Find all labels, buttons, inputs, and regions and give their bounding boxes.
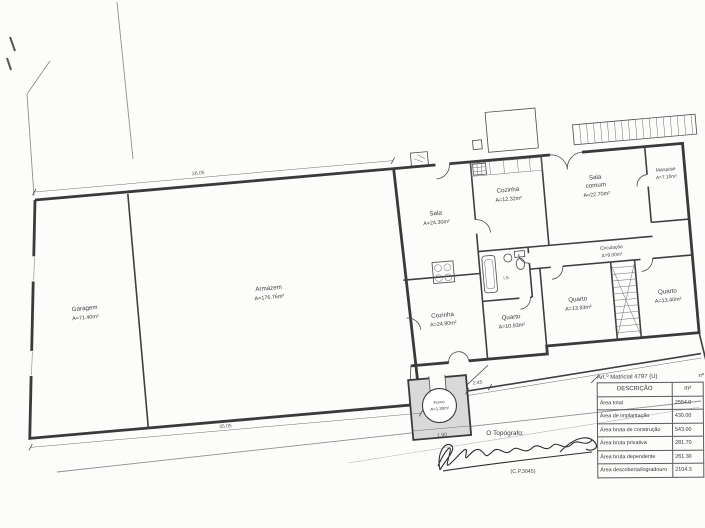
small-structure [472, 140, 482, 150]
room-label-cozinha2-name: Cozinha [431, 311, 455, 320]
room-label-quarto2-name: Quarto [568, 295, 588, 304]
topografo-title: O Topógrafo: [455, 430, 555, 437]
patio-outline [485, 108, 538, 152]
room-label-sala-comum-line2: comum [585, 181, 606, 190]
room-label-garagem-name: Garagem [71, 304, 97, 313]
dimension-bottom-label: 35.05 [219, 423, 232, 430]
table-row: Área de implantação 430.00 [597, 409, 703, 423]
room-label-armazem-area: A=176.76m² [254, 294, 284, 303]
dimension-top-label: 26.05 [192, 170, 205, 177]
row-value: 281.70 [673, 436, 704, 450]
boundary-line-left [27, 61, 50, 196]
room-label-armazem-name: Armazem [255, 284, 282, 293]
room-label-marquise-area: A=7.10m² [656, 173, 678, 181]
room-label-cozinha2-area: A=24.90m² [430, 320, 457, 328]
sink-grid [473, 163, 487, 175]
row-label: Área bruta de construção [597, 423, 672, 437]
dimension-bottom: 35.05 [28, 407, 423, 451]
bathroom-fixtures [481, 251, 527, 294]
room-label-quarto3-area: A=13.40m² [655, 297, 682, 305]
room-label-cozinha-area: A=12.32m² [495, 196, 522, 204]
matricial-article-line: Art.º Matricial 4797 (U) nº [597, 373, 704, 381]
row-label: Área descoberta/logradouro [598, 463, 673, 477]
row-value: 543.00 [672, 423, 703, 437]
boundary-line-top [117, 2, 133, 159]
row-value: 2554.0 [672, 396, 703, 410]
room-label-quarto1-name: Quarto [501, 313, 521, 322]
table-row: Área bruta privativa 281.70 [598, 436, 704, 450]
matricial-article-label: Art.º Matricial 4797 (U) [597, 374, 658, 381]
stove [432, 261, 455, 284]
table-corner-label: nº [698, 373, 704, 379]
room-label-quarto1-area: A=10.93m² [498, 322, 525, 330]
areas-table-block: Art.º Matricial 4797 (U) nº DESCRIÇÃO m²… [597, 374, 704, 478]
garage-warehouse-outline [9, 168, 420, 438]
room-label-marquise-name: Marquise [656, 166, 677, 174]
room-label-sala-comum-line1: Sala [589, 174, 603, 182]
room-label-circulacao-area: A=9.00m² [601, 251, 623, 259]
row-value: 430.00 [672, 409, 703, 423]
table-row: Área total 2554.0 [597, 396, 703, 410]
room-label-cozinha-name: Cozinha [496, 186, 520, 195]
row-label: Área bruta privativa [598, 436, 673, 450]
room-label-sala-name: Sala [429, 210, 443, 218]
scanned-floor-plan-page: 26.05 [0, 0, 705, 528]
room-labels: Garagem A=71.40m² Armazem A=176.76m² Sal… [64, 166, 690, 368]
row-value: 2104.3 [673, 463, 704, 477]
room-label-circulacao-name: Circulação [600, 244, 623, 252]
door-openings [16, 147, 662, 399]
chimney-marks [414, 154, 426, 163]
chimney [410, 152, 428, 166]
dimension-forno-offset: 2.45 [473, 380, 483, 387]
signature [438, 438, 597, 471]
topografo-credential: (C.P.3045) [478, 469, 568, 475]
dimension-forno-width: 1.90 [437, 432, 447, 439]
table-row: Área bruta de construção 543.00 [597, 423, 703, 437]
table-row: Área bruta dependente 261.30 [598, 450, 704, 464]
toilet-tank [514, 251, 524, 258]
room-label-sala-area: A=24.30m² [423, 219, 450, 227]
row-value: 261.30 [673, 450, 704, 464]
room-label-quarto3-name: Quarto [658, 287, 678, 296]
row-label: Área total [597, 396, 672, 410]
row-label: Área de implantação [597, 409, 672, 423]
room-label-garagem-area: A=71.40m² [72, 314, 99, 322]
col-header-descricao: DESCRIÇÃO [597, 382, 672, 396]
room-label-sala-comum-area: A=22.70m² [583, 191, 610, 199]
areas-table: DESCRIÇÃO m² Área total 2554.0 Área de i… [597, 382, 705, 478]
room-label-is: I.S. [503, 275, 510, 281]
washbasin [504, 254, 513, 263]
room-label-forno-name: Forno [433, 399, 445, 405]
toilet-bowl [516, 258, 525, 270]
col-header-m2: m² [672, 382, 703, 396]
table-header-row: DESCRIÇÃO m² [597, 382, 703, 396]
table-row: Área descoberta/logradouro 2104.3 [598, 463, 704, 477]
bathtub [482, 255, 498, 293]
pergola-hatch [572, 114, 696, 145]
row-label: Área bruta dependente [598, 450, 673, 464]
room-label-quarto2-area: A=13.93m² [565, 304, 592, 312]
staircase [611, 262, 641, 338]
scan-artifact [7, 37, 15, 70]
